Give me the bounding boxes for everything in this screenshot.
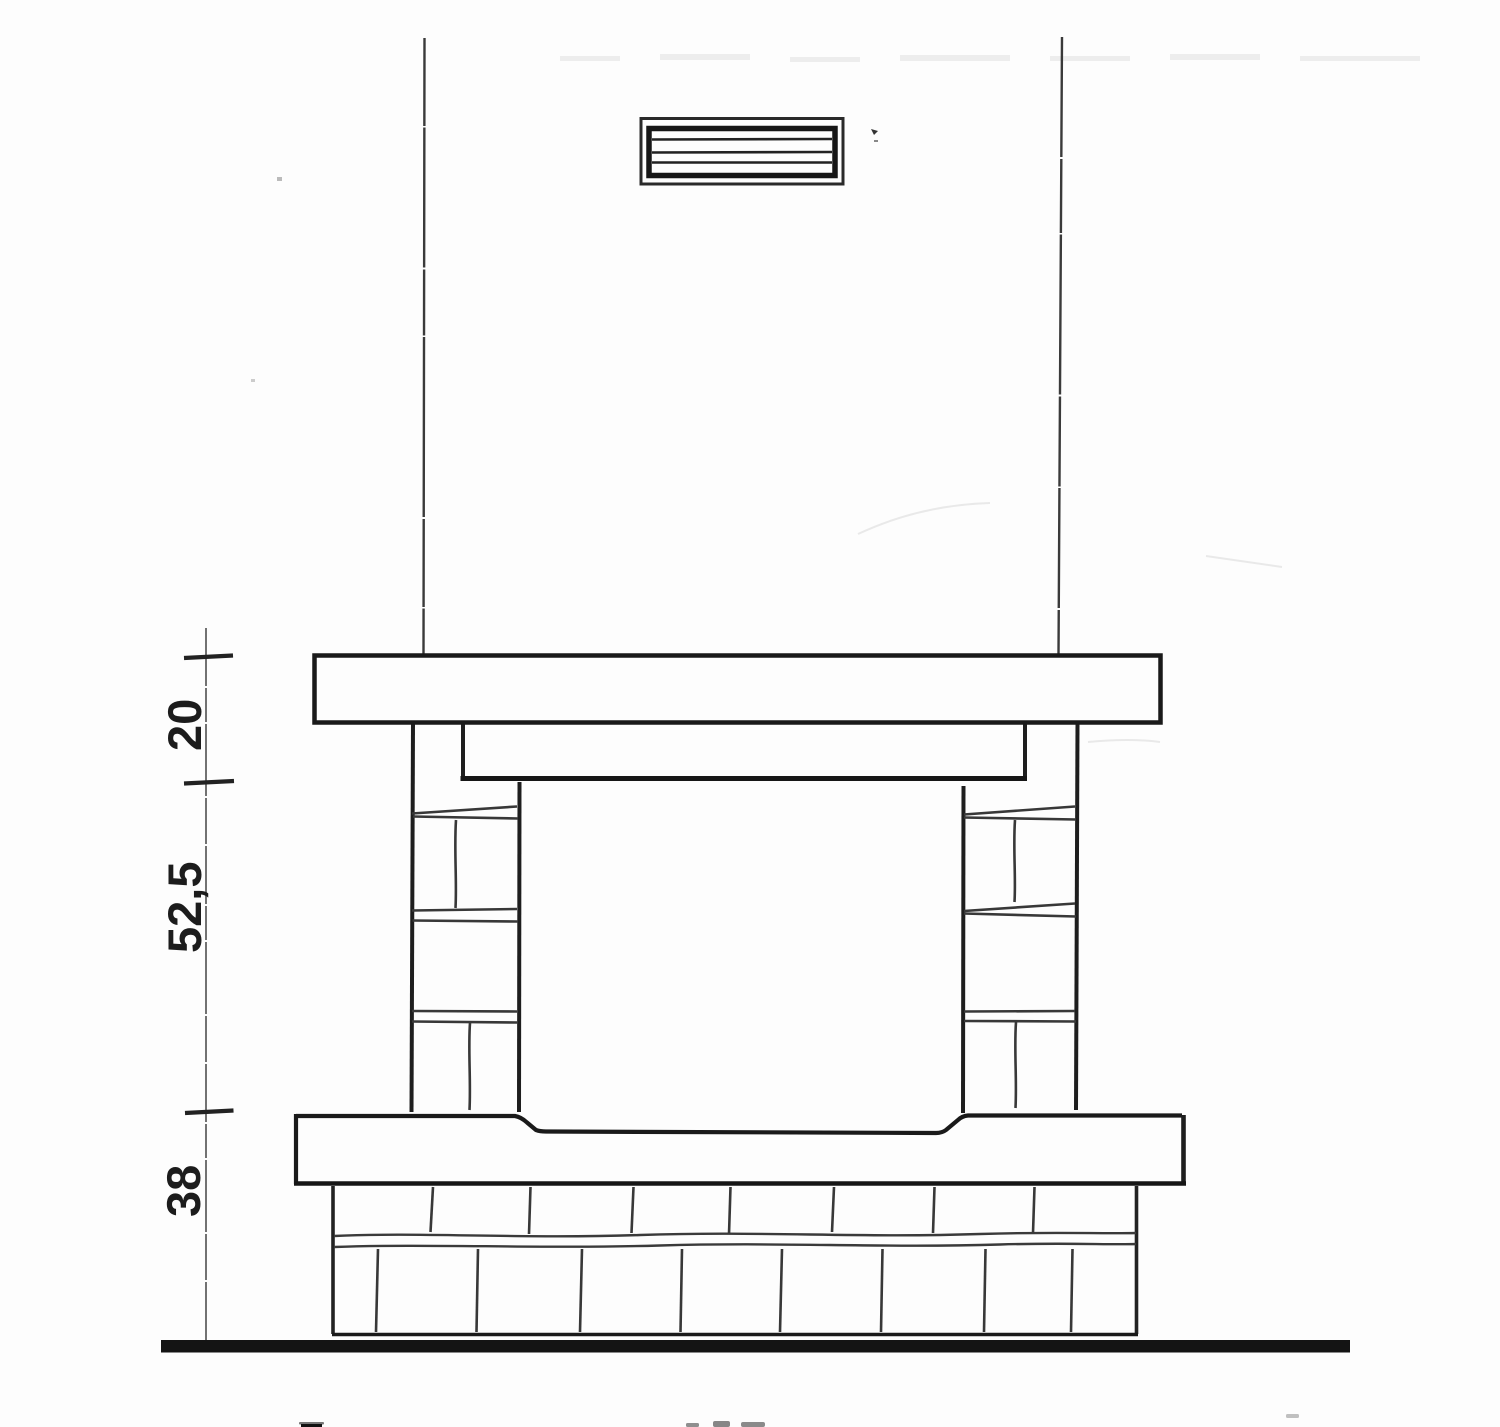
svg-text:52,5: 52,5 [158, 862, 211, 953]
svg-text:38: 38 [157, 1165, 210, 1217]
svg-text:20: 20 [158, 699, 211, 751]
